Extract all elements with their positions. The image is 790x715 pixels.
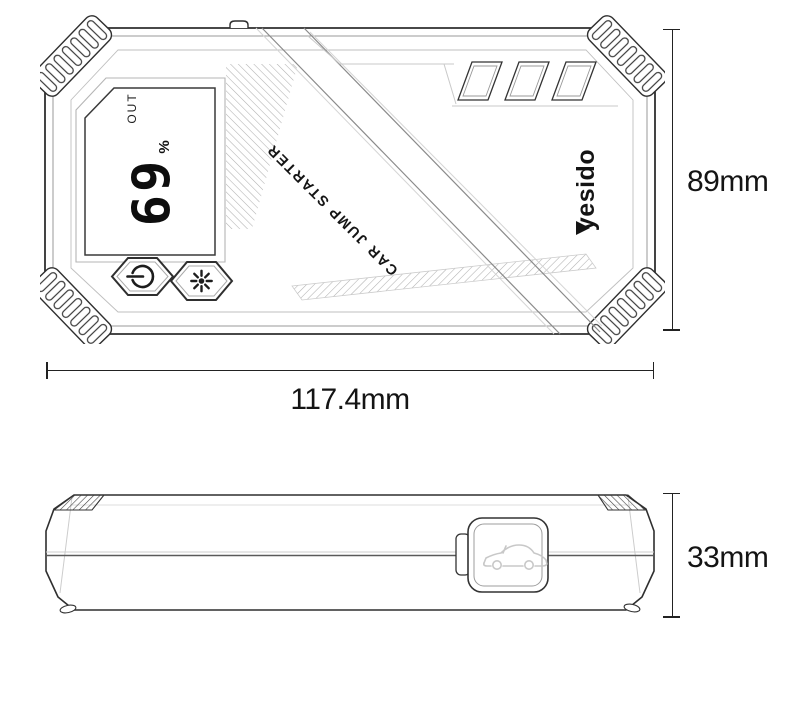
height-dimension-label: 89mm bbox=[687, 166, 768, 198]
top-edge-button bbox=[230, 21, 248, 28]
width-dimension-cap-right bbox=[653, 362, 655, 379]
light-icon bbox=[191, 271, 211, 291]
display-percent-unit: % bbox=[156, 140, 173, 153]
foot-right bbox=[623, 603, 640, 613]
thickness-dimension-label: 33mm bbox=[687, 542, 768, 574]
display-battery-value: 69 bbox=[122, 158, 182, 227]
product-dimension-diagram: OUT % 69 bbox=[0, 0, 790, 715]
top-view-drawing: OUT % 69 bbox=[40, 14, 665, 344]
side-view-drawing bbox=[40, 485, 665, 625]
port-cover bbox=[468, 518, 548, 592]
thickness-dimension-cap-top bbox=[663, 493, 680, 495]
top-view: OUT % 69 bbox=[40, 14, 665, 344]
width-dimension-line bbox=[47, 370, 653, 372]
width-dimension-label: 117.4mm bbox=[250, 384, 450, 416]
width-dimension-cap-left bbox=[46, 362, 48, 379]
vent-slots bbox=[458, 62, 596, 100]
height-dimension-cap-bottom bbox=[663, 329, 680, 331]
height-dimension-cap-top bbox=[663, 29, 680, 31]
height-dimension-line bbox=[672, 29, 674, 330]
side-view bbox=[40, 485, 665, 625]
foot-left bbox=[59, 604, 76, 614]
brand-logo: yesido bbox=[572, 149, 600, 235]
brand-logo-text: yesido bbox=[572, 149, 600, 231]
display-out-indicator: OUT bbox=[125, 92, 139, 123]
thickness-dimension-line bbox=[672, 493, 674, 617]
thickness-dimension-cap-bottom bbox=[663, 616, 680, 618]
